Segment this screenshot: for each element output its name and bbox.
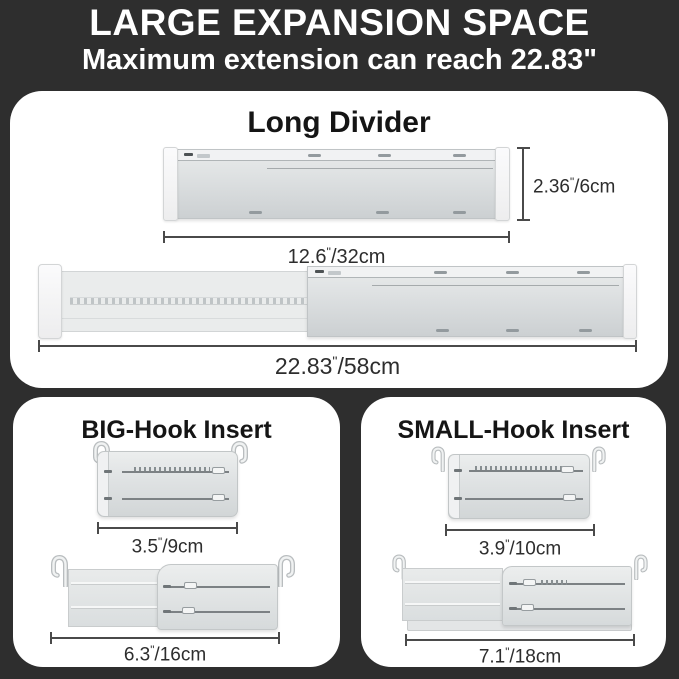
dimension-value: 22.83 [275,353,333,379]
ratchet-strip [70,297,336,305]
dimension-unit: /18cm [509,646,561,667]
detail-line [71,606,157,608]
dimension-unit: /58cm [337,353,400,379]
hook-icon [632,554,649,580]
detail-mark [163,610,171,613]
dimension-unit: /16cm [154,644,206,665]
collapsed-insert-body [97,451,238,517]
extended-insert-right-section [502,566,632,626]
slider-clip [212,494,225,501]
detail-mark [454,497,462,500]
extended-length-dimension-line [38,345,637,347]
hook-icon [430,446,447,472]
detail-line [405,581,500,583]
rail-line [267,168,493,169]
long-divider-title: Long Divider [10,106,668,140]
small-hook-panel: SMALL-Hook Insert 3.9"/10cm [361,397,666,667]
collapsed-divider-illustration [163,147,510,221]
slider-clip [521,604,534,611]
extended-insert-left-section [68,569,160,627]
collapsed-length-label: 3.9"/10cm [420,538,620,560]
dimension-value: 2.36 [533,176,570,197]
collapsed-length-label: 3.5"/9cm [57,536,278,558]
dimension-unit: /9cm [162,536,203,557]
end-cap-left [38,264,62,339]
dimension-unit: /6cm [574,176,615,197]
collapsed-insert-body [448,454,590,519]
dimension-value: 3.5 [132,536,158,557]
detail-mark [509,582,517,585]
slot-mark [376,211,389,214]
collapsed-length-dimension-line [163,236,510,238]
big-hook-title: BIG-Hook Insert [13,416,340,445]
detail-line [71,582,157,584]
extended-insert-left-section [402,568,503,621]
slot-mark [453,154,466,157]
slot-mark [453,211,466,214]
small-hook-title: SMALL-Hook Insert [361,416,666,445]
extended-length-label: 22.83"/58cm [38,353,637,380]
dimension-value: 7.1 [479,646,505,667]
slot-mark [378,154,391,157]
slider-clip [523,579,536,586]
dimension-value: 6.3 [124,644,150,665]
page-title: LARGE EXPANSION SPACE [0,2,679,44]
page-subtitle: Maximum extension can reach 22.83" [0,44,679,77]
rail-line [372,285,619,286]
extended-dimension-line [405,639,635,641]
ratchet-strip [541,580,567,585]
extended-dimension-line [50,637,280,639]
detail-line [62,318,342,319]
slot-mark [308,154,321,157]
divider-body [176,149,497,219]
detail-mark [104,497,112,500]
extended-divider-illustration [38,264,637,339]
slider-clip [182,607,195,614]
end-cap-right [495,147,510,221]
height-dimension-label: 2.36"/6cm [533,176,615,198]
extended-insert-right-section [157,564,278,630]
divider-top-band [308,267,623,278]
slot-mark [579,329,592,332]
slot-mark [249,211,262,214]
infographic-canvas: LARGE EXPANSION SPACE Maximum extension … [0,0,679,679]
end-cap-right [623,264,637,339]
slider-clip [561,466,574,473]
detail-mark [163,585,171,588]
collapsed-dimension-line [445,529,595,531]
insert-back-strip [449,455,460,518]
extended-length-label: 7.1"/18cm [405,646,635,668]
detail-mark [454,469,462,472]
detail-line [405,603,500,605]
detail-mark [197,154,210,158]
detail-mark [315,270,324,273]
divider-body [307,266,624,337]
slider-clip [212,467,225,474]
detail-mark [509,607,517,610]
insert-back-strip [98,452,109,516]
long-divider-panel: Long Divider 2.36"/6cm 12.6"/32cm [10,91,668,388]
slot-mark [434,271,447,274]
detail-mark [104,470,112,473]
slider-clip [184,582,197,589]
slot-mark [436,329,449,332]
detail-mark [328,271,341,275]
dimension-value: 3.9 [479,538,505,559]
big-hook-panel: BIG-Hook Insert 3.5"/9cm [13,397,340,667]
slider-clip [563,494,576,501]
hook-icon [275,555,297,587]
height-dimension-line [522,147,524,221]
collapsed-dimension-line [97,527,238,529]
telescopic-inner-section [59,271,345,332]
slot-mark [506,271,519,274]
end-cap-left [163,147,178,221]
detail-mark [184,153,193,156]
hook-icon [590,446,607,472]
slot-mark [577,271,590,274]
dimension-unit: /10cm [509,538,561,559]
divider-top-band [177,150,496,161]
slot-mark [506,329,519,332]
extended-length-label: 6.3"/16cm [50,644,280,666]
